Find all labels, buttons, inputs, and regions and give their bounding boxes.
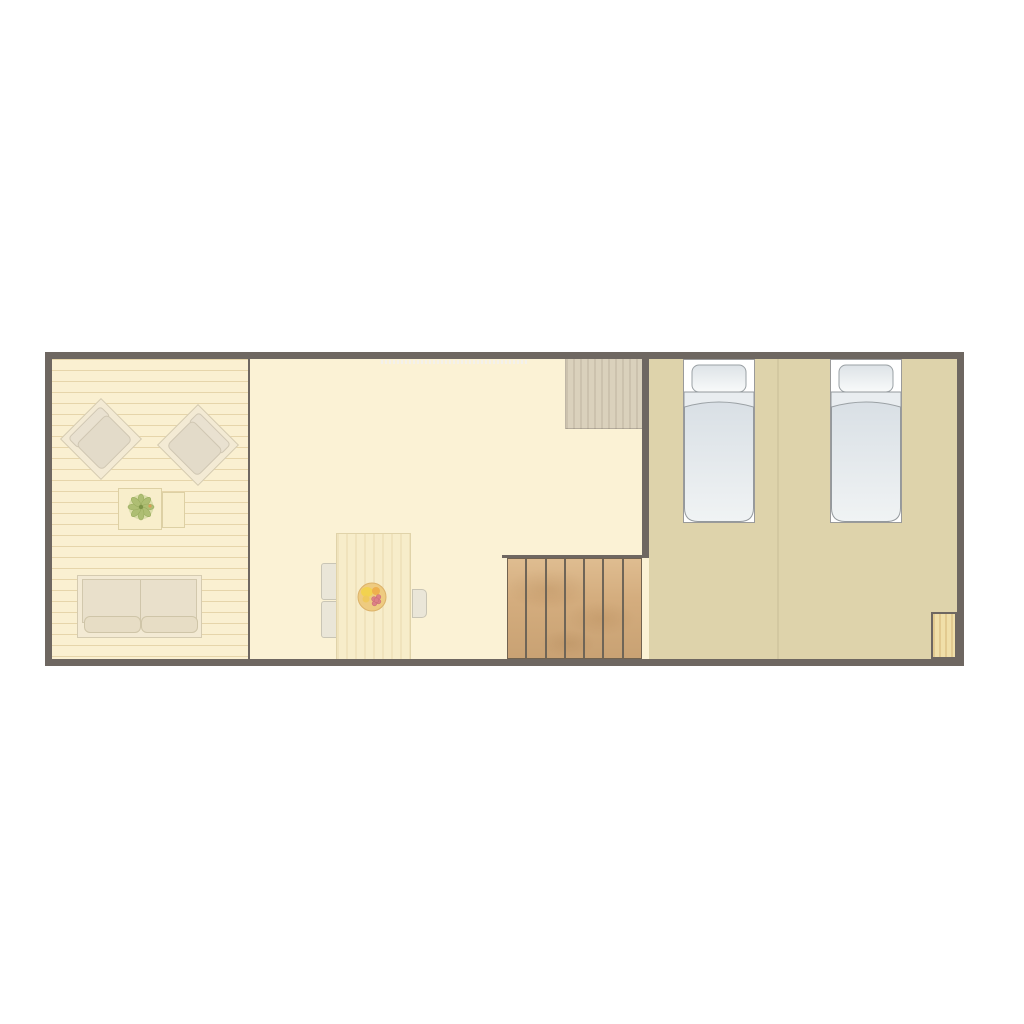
sofa-seat-cushion xyxy=(141,616,198,633)
dining-chair xyxy=(321,563,337,600)
stair-tread xyxy=(604,559,623,658)
closet xyxy=(565,359,642,429)
stair-tread xyxy=(527,559,546,658)
living-dining-divider-wall xyxy=(248,359,250,659)
dining-chair xyxy=(321,601,337,638)
bedroom-floor-seam xyxy=(777,359,779,659)
potted-plant-icon xyxy=(127,493,155,521)
floor-plan-outline xyxy=(45,352,964,666)
stair-tread xyxy=(566,559,585,658)
pillow xyxy=(692,365,746,392)
stair-tread xyxy=(508,559,527,658)
corner-floor-mat xyxy=(931,612,957,659)
stair-tread xyxy=(624,559,641,658)
bed-graphic xyxy=(830,359,902,523)
stair-tread xyxy=(547,559,566,658)
sofa-seat-cushion xyxy=(84,616,141,633)
staircase xyxy=(507,558,642,659)
bed-graphic xyxy=(683,359,755,523)
stair-tread xyxy=(585,559,604,658)
fruit-bowl-icon xyxy=(357,582,387,612)
sofa xyxy=(77,575,202,638)
dining-chair xyxy=(412,589,427,618)
single-bed xyxy=(683,359,755,523)
side-table xyxy=(162,492,185,528)
window-tick-marks xyxy=(381,360,528,364)
blanket xyxy=(832,392,901,522)
pillow xyxy=(839,365,893,392)
sofa-cushion-divider xyxy=(140,580,141,622)
stairwell-wall xyxy=(502,555,649,558)
blanket xyxy=(685,392,754,522)
single-bed xyxy=(830,359,902,523)
plan-interior xyxy=(52,359,957,659)
dining-bedroom-wall xyxy=(642,359,649,558)
floor-plan-page xyxy=(0,0,1024,1024)
